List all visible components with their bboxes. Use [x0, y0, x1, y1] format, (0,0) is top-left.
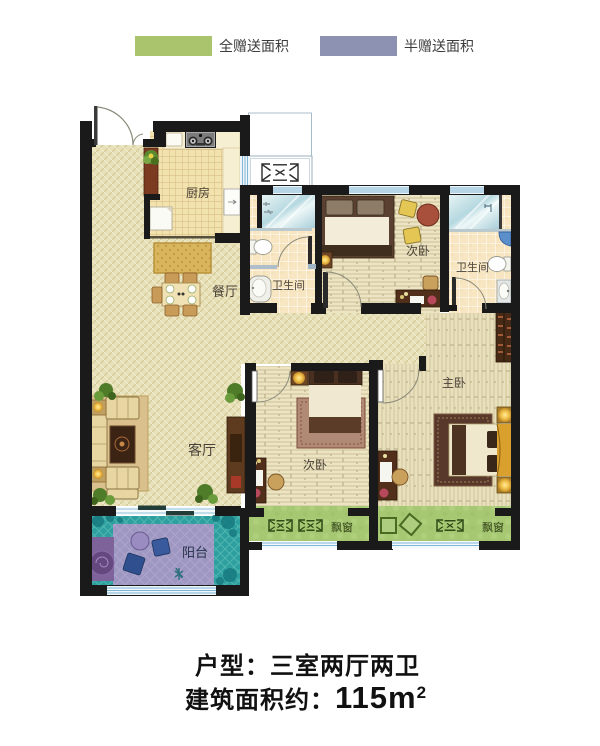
- svg-text:次卧: 次卧: [303, 458, 327, 472]
- svg-text:全赠送面积: 全赠送面积: [219, 38, 289, 54]
- svg-text:卫生间: 卫生间: [272, 278, 305, 292]
- svg-text:餐厅: 餐厅: [212, 284, 238, 299]
- svg-text:卫生间: 卫生间: [456, 260, 489, 274]
- svg-text:半赠送面积: 半赠送面积: [404, 38, 474, 54]
- svg-text:客厅: 客厅: [188, 442, 216, 458]
- svg-text:次卧: 次卧: [406, 244, 430, 258]
- svg-text:户型：三室两厅两卫: 户型：三室两厅两卫: [195, 652, 420, 680]
- svg-text:飘窗: 飘窗: [482, 520, 504, 534]
- svg-text:阳台: 阳台: [182, 545, 208, 560]
- svg-text:主卧: 主卧: [442, 376, 466, 390]
- svg-text:飘窗: 飘窗: [331, 520, 353, 534]
- svg-text:厨房: 厨房: [186, 185, 210, 200]
